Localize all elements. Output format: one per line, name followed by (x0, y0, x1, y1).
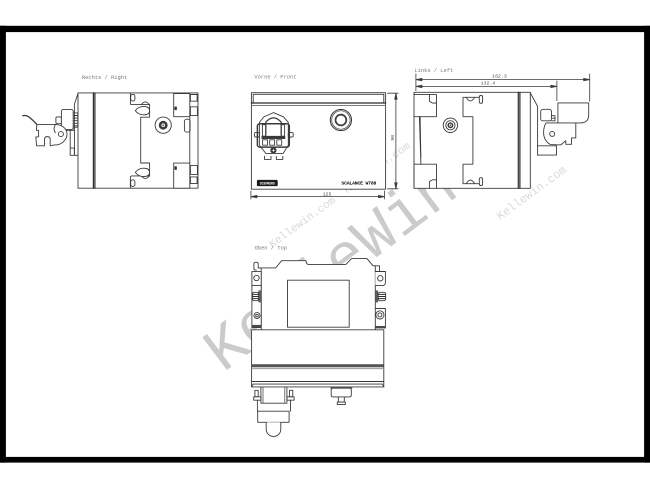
svg-text:Vorne / Front: Vorne / Front (254, 75, 296, 81)
svg-text:Links / Left: Links / Left (414, 68, 453, 74)
svg-text:162.3: 162.3 (492, 74, 507, 80)
svg-text:SCALANCE W788: SCALANCE W788 (341, 181, 376, 187)
svg-text:Rechts / Right: Rechts / Right (82, 75, 127, 81)
svg-text:125: 125 (323, 192, 332, 198)
svg-text:SIEMENS: SIEMENS (260, 183, 276, 187)
svg-text:Oben / Top: Oben / Top (255, 245, 287, 251)
svg-text:132.4: 132.4 (481, 80, 496, 86)
svg-text:90: 90 (390, 135, 396, 141)
